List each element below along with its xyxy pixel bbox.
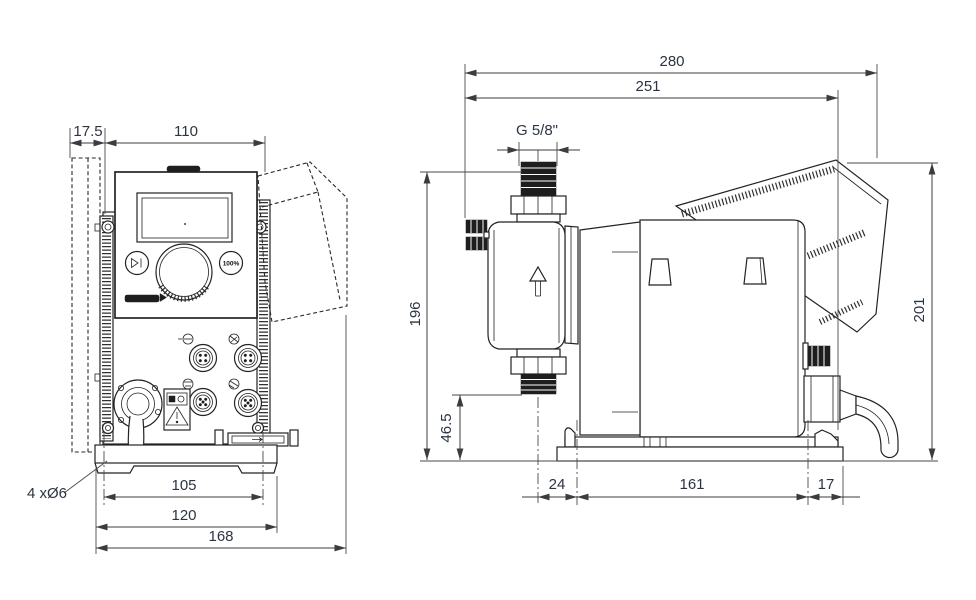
motor-housing [640,220,805,437]
discharge-valve-connection [511,162,566,222]
dim-hole-pitch-side: 161 [577,476,808,497]
dim-mounting-holes: 4 xØ6 [27,461,107,502]
m12-connector [235,345,262,372]
rear-base-hook [815,430,838,447]
deaeration-valve-port [466,220,489,250]
warning-label [164,389,190,430]
suction-valve-connection [511,349,566,394]
dim-front-hole-to-center-label: 24 [549,476,566,493]
housing-front-section [580,222,640,435]
m12-connector [190,389,217,416]
dim-depth-to-rear-label: 251 [635,78,660,95]
union-nut [511,196,566,214]
dimensional-drawing-page: 100% [0,0,976,600]
dim-overall-width-label: 168 [208,528,233,545]
mounting-base-front [95,445,277,473]
dim-suction-connection-height-label: 46.5 [438,413,455,442]
side-view: 280 251 G 5/8" 196 46.5 201 [407,53,938,505]
m12-connector [190,345,217,372]
dim-overall-height-label: 201 [911,297,928,322]
dosing-head [488,222,565,349]
dim-overall-depth-label: 280 [659,53,684,70]
union-nut [511,357,566,374]
dim-wall-offset-label: 17.5 [73,123,102,140]
dim-base-width-label: 120 [171,507,196,524]
dim-front-hole-to-center: 24 [522,476,577,497]
vent-mark [649,259,671,285]
dim-housing-width-label: 110 [174,123,198,140]
dim-connection-thread-label: G 5/8" [516,122,558,139]
dim-wall-offset: 17.5 [70,123,105,158]
vent-mark [744,258,766,284]
side-flange-left [100,216,114,441]
screw-icon [103,423,114,434]
dim-hole-pitch-front: 105 [104,477,263,497]
front-base-hook [565,428,575,447]
rear-vent-stub [803,343,830,369]
front-view: 100% [27,123,347,554]
control-cover-phantom-outline [258,162,347,322]
boost-button-label: 100% [223,261,240,268]
m12-connector [235,390,262,417]
dim-connection-thread: G 5/8" [497,122,580,166]
screw-icon [253,423,264,434]
dim-hole-pitch-front-label: 105 [171,477,196,494]
panel-top-tab [167,166,200,172]
dim-rear-hole-to-edge-label: 17 [818,476,835,493]
dim-mounting-holes-label: 4 xØ6 [27,485,67,502]
dim-rear-hole-to-edge: 17 [808,466,860,505]
grundfos-logo [125,294,167,303]
control-panel: 100% [115,166,257,318]
dim-height-to-connection-top-label: 196 [407,301,424,326]
dim-suction-connection-height: 46.5 [438,395,522,460]
mains-cable [856,396,898,458]
wall-plate-hidden-outline [72,158,103,452]
dim-hole-pitch-side-label: 161 [679,476,704,493]
dosing-pump-dimensional-drawing: 100% [0,0,976,600]
head-adapter-plate [565,226,578,344]
display-cursor-dot [184,223,186,225]
